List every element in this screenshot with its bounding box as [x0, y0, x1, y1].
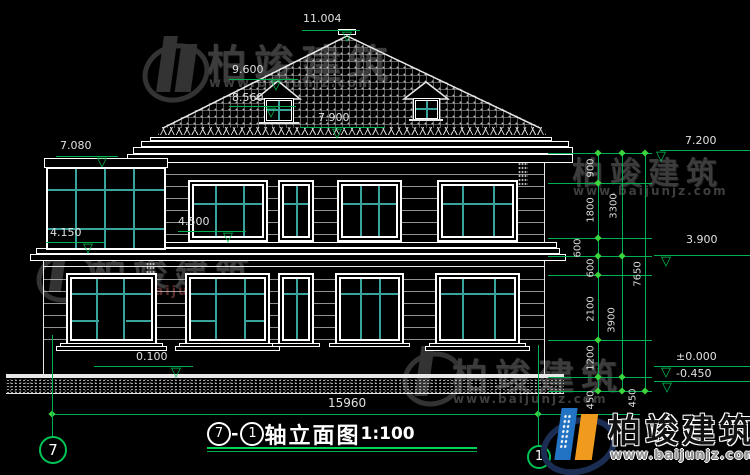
window-mullion [243, 186, 245, 236]
elevation-line [56, 156, 118, 157]
cad-elevation-drawing: 柏竣建筑 www.baijunjz.com 柏竣建筑 www.baijunjz.… [0, 0, 750, 475]
window-1f-e [435, 273, 520, 345]
window-mullion [360, 186, 362, 236]
elevation-triangle-icon: ▽ [661, 367, 671, 378]
brand-name: 柏竣建筑 [608, 404, 750, 452]
elevation-label: 11.004 [303, 13, 342, 25]
dim-value: 900 [586, 158, 597, 177]
window-mullion [360, 279, 362, 339]
window-mullion [493, 186, 495, 236]
overall-dim-value: 15960 [328, 397, 366, 409]
window-1f-b [185, 273, 270, 345]
elevation-triangle-icon: ▽ [223, 232, 233, 243]
axis-line-right [538, 345, 539, 445]
title-underline [207, 447, 477, 449]
dim-value: 600 [573, 238, 584, 257]
window-transom [343, 203, 396, 205]
elevation-label: 7.080 [60, 140, 92, 152]
elevation-triangle-icon: ▽ [97, 157, 107, 168]
dim-value: 600 [586, 258, 597, 277]
dim-value: 3900 [607, 307, 618, 332]
window-sill [272, 343, 320, 347]
drawing-title: 7-1轴立面图1:100 [207, 418, 415, 450]
elevation-line [300, 127, 385, 128]
window-transom [341, 293, 398, 295]
window-rail [126, 320, 151, 322]
title-text: 轴立面图 [264, 424, 360, 449]
window-transom [441, 293, 514, 295]
window-1f-d [335, 273, 404, 345]
elevation-label: 8.560 [232, 92, 264, 104]
title-axis-to: 1 [240, 422, 264, 446]
window-rail [72, 320, 99, 322]
dormer-sill-left [259, 122, 299, 124]
axis-line-left [52, 335, 53, 436]
roof-slope-lines [163, 36, 540, 128]
elevation-label: 4.500 [178, 216, 210, 228]
elevation-triangle-icon: ▽ [266, 107, 276, 118]
window-sill [425, 346, 530, 351]
elevation-triangle-icon: ▽ [656, 151, 666, 162]
elevation-label: ±0.000 [676, 351, 717, 363]
elevation-line [660, 150, 750, 151]
window-rail [246, 320, 264, 322]
window-2f-c [337, 180, 402, 242]
brand-site: www.baijunjz.com [610, 448, 750, 463]
dormer-roof-right [404, 82, 448, 99]
window-transom [191, 293, 264, 295]
window-mullion [96, 279, 98, 339]
dim-value: 450 [586, 390, 597, 409]
window-1f-a [66, 273, 157, 345]
window-sill [175, 346, 280, 351]
dim-value: 7650 [633, 261, 644, 286]
elevation-triangle-icon: ▽ [171, 367, 181, 378]
axis-bubble-left: 7 [39, 436, 67, 464]
window-mullion [215, 186, 217, 236]
elevation-triangle-icon: ▽ [342, 31, 352, 42]
elevation-triangle-icon: ▽ [83, 243, 93, 254]
window-rail [191, 320, 217, 322]
window-transom [194, 203, 262, 205]
title-axis-from: 7 [207, 422, 231, 446]
window-mullion [462, 186, 464, 236]
window-sill [329, 343, 410, 347]
dim-value: 1200 [586, 345, 597, 370]
dormer-sill-right [409, 119, 443, 121]
window-transom [284, 293, 308, 295]
dim-value: 3300 [609, 193, 620, 218]
elevation-label: 0.100 [136, 351, 168, 363]
dim-value: 1800 [586, 197, 597, 222]
window-2f-b [278, 180, 314, 242]
window-mullion [244, 279, 246, 339]
elevation-label: -0.450 [676, 368, 711, 380]
window-mullion [296, 279, 298, 339]
elevation-line [178, 231, 246, 232]
window-1f-c [278, 273, 314, 345]
elevation-triangle-icon: ▽ [662, 382, 672, 393]
window-mullion [296, 186, 298, 236]
elevation-label: 7.900 [318, 112, 350, 124]
elevation-label: 3.900 [686, 234, 718, 246]
elevation-line [229, 79, 298, 80]
elevation-line [46, 242, 104, 243]
dim-chain-line [645, 153, 646, 391]
elevation-label: 9.600 [232, 64, 264, 76]
overall-dim-line [52, 414, 640, 415]
dim-value: 2100 [586, 296, 597, 321]
elevation-label: 7.200 [685, 135, 717, 147]
window-2f-d [437, 180, 518, 242]
elevation-label: 4.150 [50, 227, 82, 239]
elevation-triangle-icon: ▽ [332, 128, 342, 139]
window-mullion [378, 186, 380, 236]
dim-chain-line [622, 153, 623, 391]
window-mullion [123, 279, 125, 339]
window-mullion [494, 279, 496, 339]
elevation-triangle-icon: ▽ [271, 80, 281, 91]
dormer-mullion [416, 108, 437, 110]
elevation-line [229, 106, 296, 107]
window-transom [72, 293, 151, 295]
elevation-triangle-icon: ▽ [661, 256, 671, 267]
window-transom [443, 203, 512, 205]
title-scale: 1:100 [361, 424, 415, 444]
dormer-window-right [413, 98, 440, 121]
window-mullion [379, 279, 381, 339]
window-transom [284, 203, 308, 205]
title-underline [207, 451, 477, 452]
window-mullion [462, 279, 464, 339]
window-mullion [215, 279, 217, 339]
